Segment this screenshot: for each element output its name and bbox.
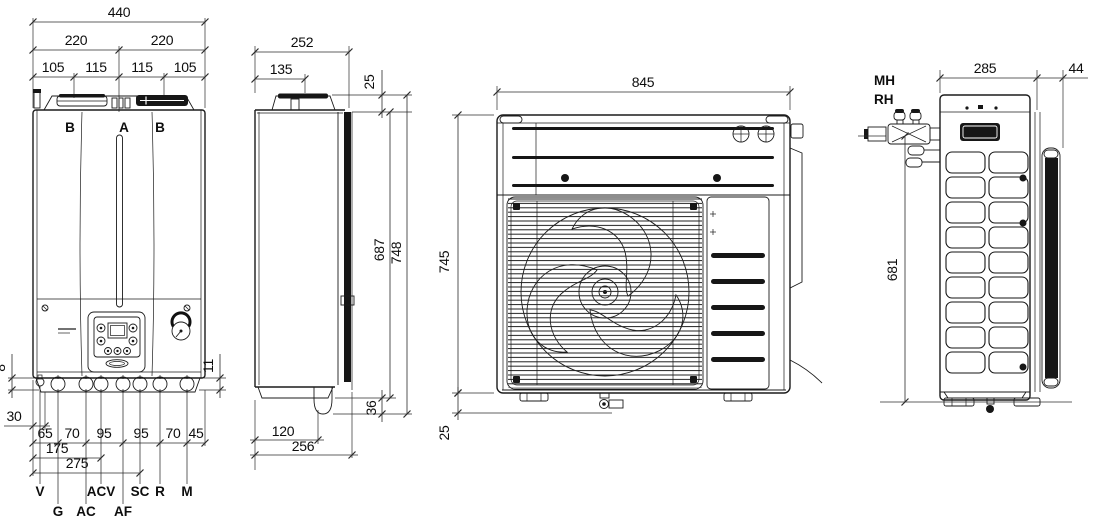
- wall-mounting-rail: [344, 112, 351, 382]
- dim-drain-offset-25: 25: [436, 387, 612, 440]
- dim-11: 11: [200, 359, 216, 373]
- dim-745: 745: [436, 250, 452, 273]
- dim-coil-44: 44: [1037, 60, 1088, 82]
- foot: [724, 393, 752, 401]
- dim-687: 687: [371, 238, 387, 261]
- side-base-and-feet: [940, 392, 1040, 413]
- dim-105-left: 105: [42, 59, 65, 75]
- dim-bottom-clearance-36: 36: [363, 390, 386, 422]
- dim-width-845: 845: [494, 74, 794, 96]
- dim-115-left: 115: [85, 59, 107, 75]
- connection-port: [180, 377, 194, 391]
- outdoor-unit-front-view: 845: [436, 74, 822, 440]
- label-conn-acv: ACV: [87, 484, 116, 499]
- dim-220-right: 220: [151, 32, 174, 48]
- dim-offset-11: 11: [199, 354, 226, 398]
- panel-buttons: [97, 324, 137, 355]
- dim-connection-pitch: 65 70 95 95 70 45: [30, 380, 209, 476]
- label-conn-ac: AC: [76, 504, 96, 519]
- dim-depth-252: 252: [252, 34, 353, 56]
- dim-8: 8: [0, 364, 8, 372]
- outdoor-side-body: [940, 95, 1040, 400]
- dim-115-right: 115: [131, 59, 153, 75]
- dim-135: 135: [270, 61, 293, 77]
- flue-label-b-right: B: [155, 120, 165, 135]
- boiler-front-view: 440 220 220 105 115 115 105: [0, 4, 226, 519]
- label-conn-sc: SC: [131, 484, 150, 499]
- dim-top-clearance-25: 25: [332, 70, 412, 118]
- dim-845: 845: [632, 74, 655, 90]
- flue-label-a: A: [119, 120, 129, 135]
- screw-dot: [561, 174, 569, 182]
- dim-256: 256: [292, 438, 315, 454]
- connection-port: [153, 377, 167, 391]
- dim-45: 45: [189, 425, 204, 441]
- boiler-top-flue-assembly: [33, 89, 194, 110]
- control-panel: [88, 312, 145, 372]
- dim-70-left: 70: [65, 425, 80, 441]
- hydraulic-valve-group: [864, 109, 940, 167]
- dim-175: 175: [46, 440, 69, 456]
- dim-30: 30: [7, 408, 22, 424]
- condenser-coil: [1042, 148, 1060, 388]
- label-conn-g: G: [53, 504, 64, 519]
- outdoor-unit-side-view: 285 44 MH RH: [858, 60, 1088, 413]
- label-conn-af: AF: [114, 504, 132, 519]
- dim-748: 748: [388, 241, 404, 264]
- label-conn-m: M: [181, 484, 192, 499]
- dim-681: 681: [884, 258, 900, 281]
- drain-fitting: [600, 393, 624, 409]
- dim-285: 285: [974, 60, 997, 76]
- dim-70-right: 70: [166, 425, 181, 441]
- dim-44: 44: [1069, 60, 1084, 76]
- dim-height-745: 745: [436, 112, 494, 397]
- side-louvre-panel: [707, 197, 769, 389]
- dim-440: 440: [108, 4, 131, 20]
- dim-overall-width: 440: [30, 4, 209, 26]
- dim-base-offset-120: 120: [250, 400, 324, 470]
- label-valve-mh: MH: [874, 73, 895, 88]
- dim-25-top: 25: [361, 74, 377, 89]
- pressure-gauge: [172, 313, 190, 340]
- connection-port: [51, 377, 65, 391]
- fan-assembly: [507, 194, 703, 389]
- boiler-side-body: [255, 94, 354, 415]
- dimensional-drawing-canvas: 440 220 220 105 115 115 105: [0, 0, 1099, 524]
- condensate-elbow: [314, 387, 332, 414]
- dim-flue-offset-135: 135: [252, 61, 309, 83]
- label-conn-r: R: [155, 484, 165, 499]
- pipe-cover-bracket: [790, 124, 822, 383]
- connection-port: [94, 377, 108, 391]
- dim-95-left: 95: [97, 425, 112, 441]
- dim-base-depth-256: 256: [250, 392, 358, 459]
- dim-105-right: 105: [174, 59, 197, 75]
- connection-port: [116, 377, 130, 391]
- dim-95-right: 95: [134, 425, 149, 441]
- front-panel-slot: [117, 135, 123, 307]
- dim-depth-285: 285: [937, 60, 1041, 82]
- embossed-panel-cells: [944, 150, 1030, 375]
- connection-port: [79, 377, 93, 391]
- hydraulic-connections: [36, 375, 200, 393]
- power-cable: [790, 360, 822, 383]
- screw-dot: [713, 174, 721, 182]
- foot: [520, 393, 548, 401]
- technical-drawing-page: 440 220 220 105 115 115 105: [0, 0, 1099, 524]
- dim-252: 252: [291, 34, 314, 50]
- connection-port: [133, 377, 147, 391]
- dim-120: 120: [272, 423, 295, 439]
- boiler-side-view: 252 135: [250, 34, 412, 470]
- dim-220-left: 220: [65, 32, 88, 48]
- label-valve-rh: RH: [874, 92, 894, 107]
- dim-36: 36: [363, 400, 379, 415]
- dim-275: 275: [66, 455, 89, 471]
- dim-half-widths: 220 220: [30, 32, 209, 54]
- label-conn-v: V: [35, 484, 44, 499]
- dim-25-drain: 25: [436, 425, 452, 440]
- flue-label-b-left: B: [65, 120, 75, 135]
